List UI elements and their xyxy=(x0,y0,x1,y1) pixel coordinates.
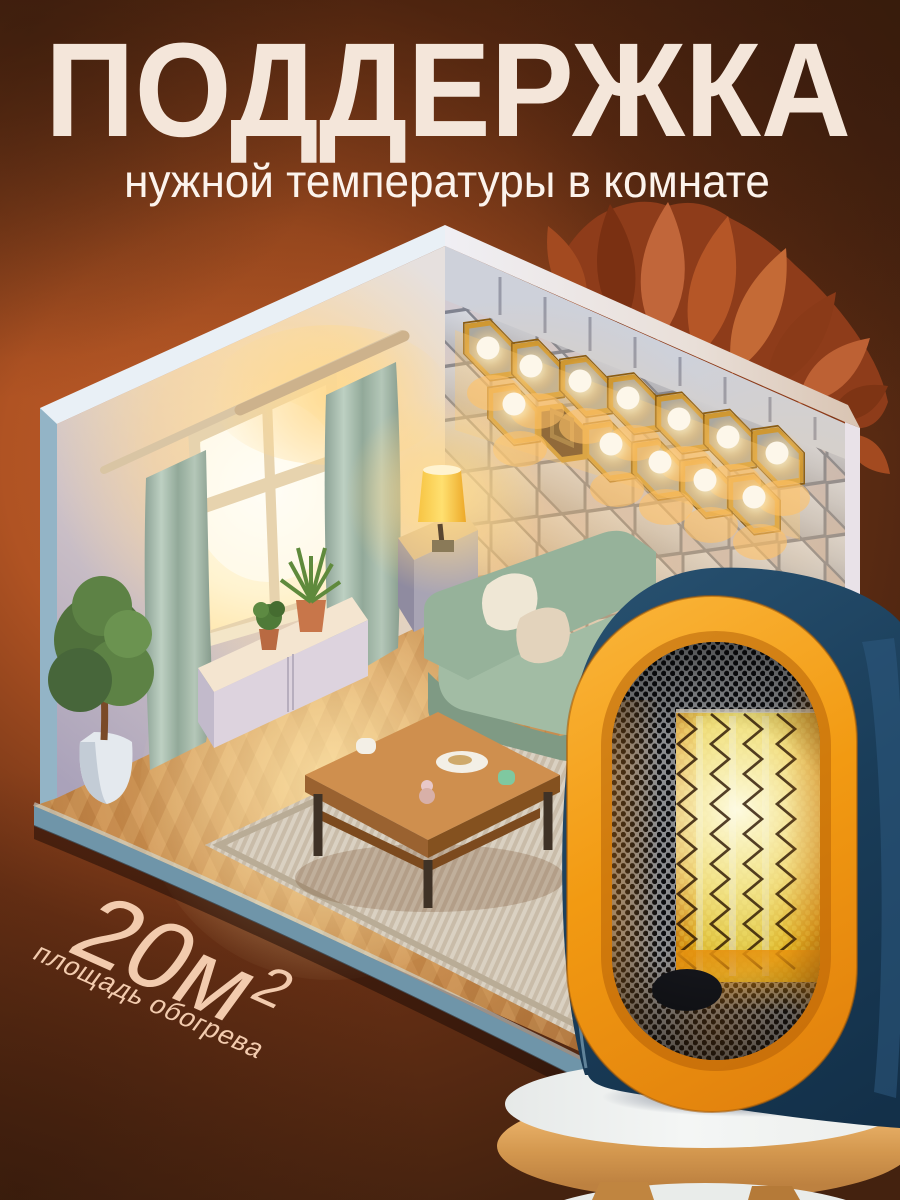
svg-text:ПОДДЕРЖКА: ПОДДЕРЖКА xyxy=(45,16,851,165)
svg-text:нужной температуры в комнате: нужной температуры в комнате xyxy=(124,155,770,207)
